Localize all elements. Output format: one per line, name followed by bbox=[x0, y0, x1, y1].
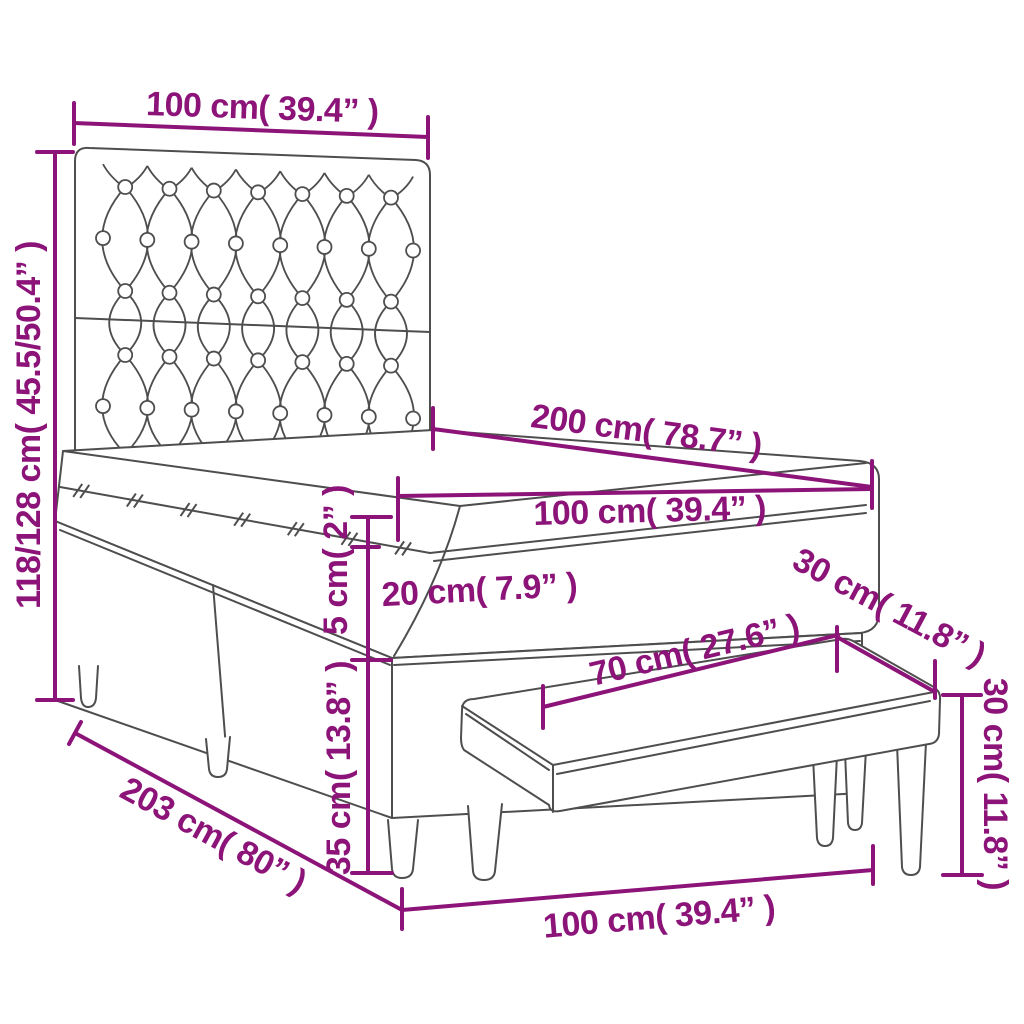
headboard bbox=[75, 148, 430, 470]
dim-base-height-label: 35 cm( 13.8” ) bbox=[320, 661, 358, 875]
dim-bench-height: 30 cm( 11.8” ) bbox=[943, 678, 1014, 890]
dim-headboard-width-label: 100 cm( 39.4” ) bbox=[146, 85, 380, 131]
bench-leg-front-right bbox=[897, 742, 926, 875]
dim-mattress-width-label: 100 cm( 39.4” ) bbox=[533, 489, 766, 533]
dim-bed-overall-length-label: 203 cm( 80” ) bbox=[114, 770, 312, 901]
bed-leg-3 bbox=[388, 820, 418, 878]
dim-bench-height-label: 30 cm( 11.8” ) bbox=[976, 678, 1014, 890]
bed-dimension-diagram: 100 cm( 39.4” ) 118/128 cm( 45.5/50.4” )… bbox=[0, 0, 1024, 1024]
dim-topper-thickness-label: 5 cm( 2” ) bbox=[317, 485, 355, 635]
bed-leg-1 bbox=[79, 666, 98, 707]
bench-leg-back-right-1 bbox=[813, 755, 837, 846]
dim-headboard-width: 100 cm( 39.4” ) bbox=[74, 85, 428, 158]
bench-leg-front-left bbox=[468, 804, 502, 880]
bench-leg-back-right-2 bbox=[845, 749, 866, 830]
dim-overall-height-label: 118/128 cm( 45.5/50.4” ) bbox=[10, 241, 48, 609]
diagram-canvas: 100 cm( 39.4” ) 118/128 cm( 45.5/50.4” )… bbox=[0, 0, 1024, 1024]
bed-leg-2 bbox=[206, 737, 230, 777]
